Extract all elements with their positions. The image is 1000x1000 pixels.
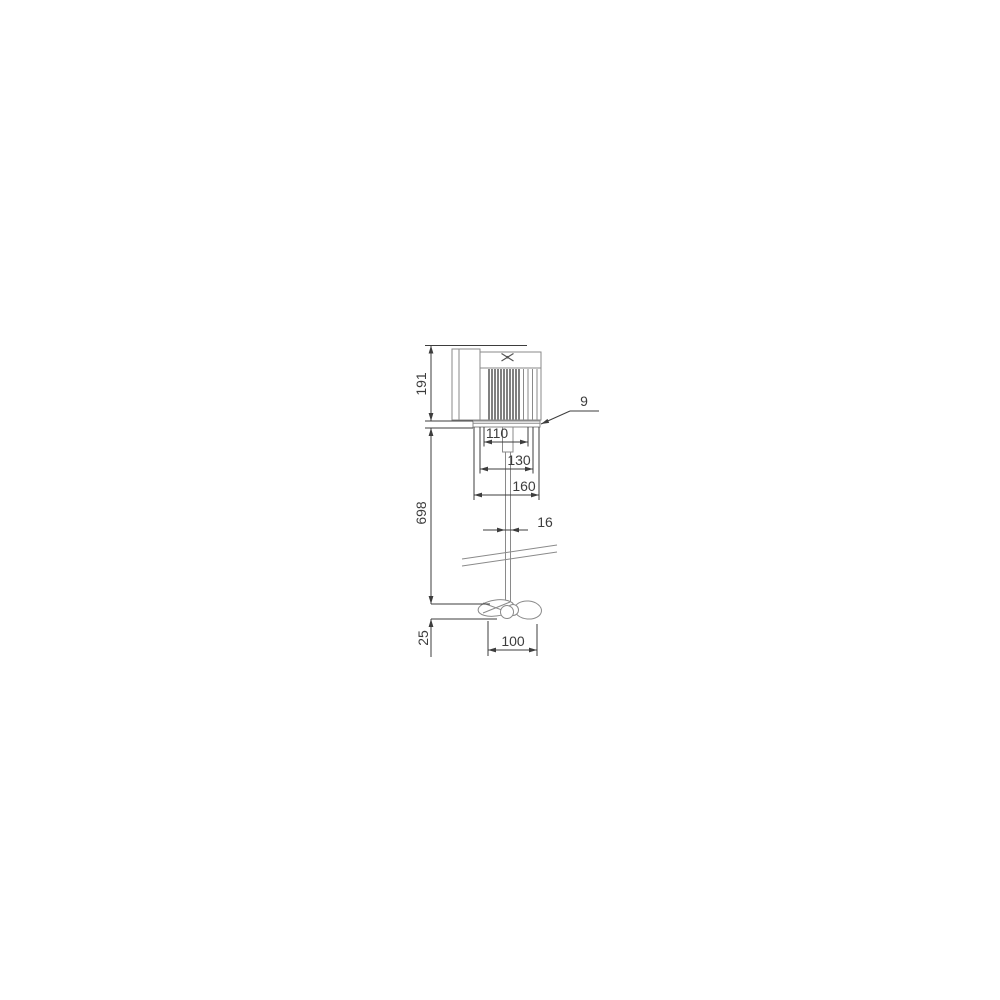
dimension-propeller-diameter: 100 bbox=[488, 621, 537, 656]
dimension-bracket-width: 130 bbox=[480, 452, 533, 471]
dimension-propeller-offset: 25 bbox=[415, 619, 497, 657]
dimension-shaft-length: 698 bbox=[413, 428, 490, 604]
propeller-hub bbox=[501, 606, 514, 619]
dimension-plate-width: 160 bbox=[474, 478, 539, 497]
dim-label-shaft-length: 698 bbox=[413, 501, 429, 525]
technical-drawing-canvas: 191 9 110 130 160 698 bbox=[0, 0, 1000, 1000]
motor-assembly bbox=[452, 349, 541, 420]
dim-label-bracket-width: 130 bbox=[507, 452, 531, 468]
dim-label-motor-height: 191 bbox=[413, 372, 429, 396]
dim-label-propeller-offset: 25 bbox=[415, 630, 431, 646]
dim-label-plate-width: 160 bbox=[512, 478, 536, 494]
dimension-shaft-diameter: 16 bbox=[483, 514, 553, 532]
dim-label-propeller-diameter: 100 bbox=[501, 633, 525, 649]
dim-label-hub-spacing: 110 bbox=[486, 425, 509, 441]
motor-side-housing bbox=[452, 349, 480, 420]
propeller bbox=[477, 598, 542, 621]
plate-thickness-callout: 9 bbox=[541, 393, 599, 424]
dim-label-plate-thickness: 9 bbox=[580, 393, 588, 409]
shaft-break-lines bbox=[462, 545, 557, 566]
dim-label-shaft-diameter: 16 bbox=[537, 514, 553, 530]
mixer-dimension-drawing: 191 9 110 130 160 698 bbox=[0, 0, 1000, 1000]
terminal-box bbox=[480, 352, 541, 368]
